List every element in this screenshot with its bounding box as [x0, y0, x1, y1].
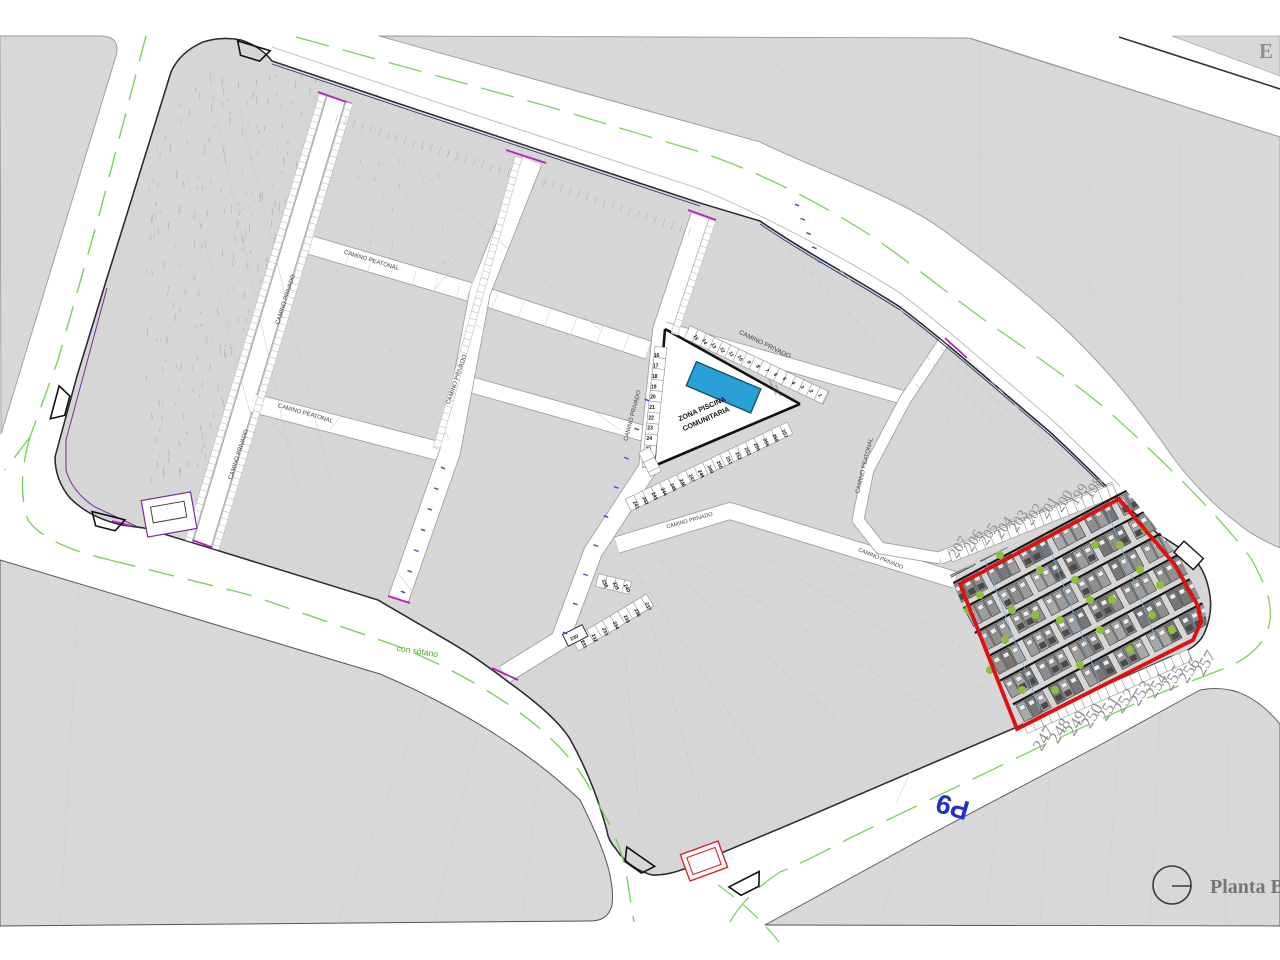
- svg-text:24: 24: [647, 436, 653, 442]
- svg-text:17: 17: [653, 364, 659, 370]
- svg-text:20: 20: [650, 395, 656, 401]
- svg-text:E: E: [1259, 39, 1273, 63]
- svg-text:22: 22: [648, 415, 654, 421]
- svg-text:21: 21: [649, 405, 655, 411]
- svg-text:19: 19: [651, 384, 657, 390]
- svg-text:18: 18: [652, 374, 658, 380]
- svg-text:16: 16: [654, 353, 660, 359]
- svg-text:Planta B: Planta B: [1210, 876, 1280, 898]
- svg-text:23: 23: [647, 426, 653, 432]
